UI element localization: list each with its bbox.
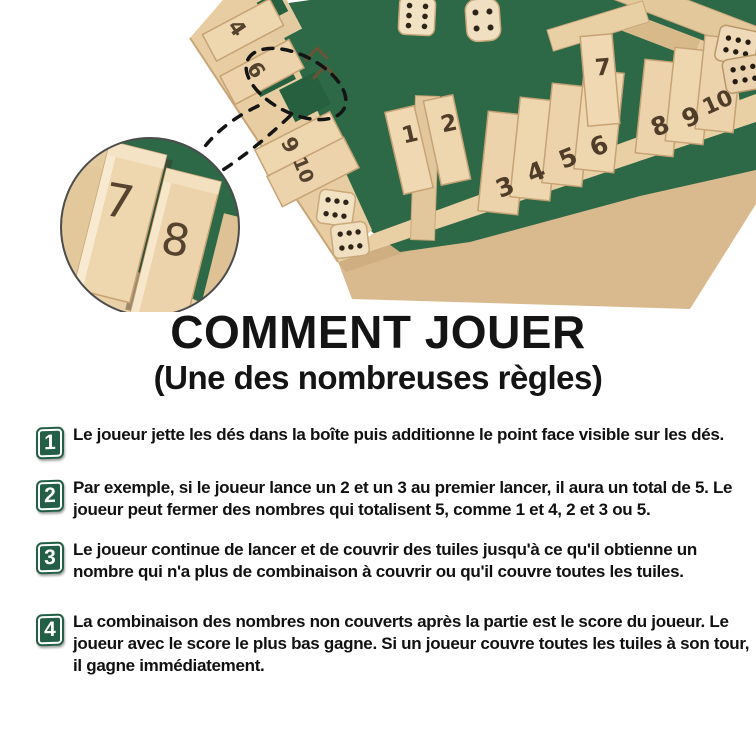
step-number-badge: 1 — [36, 427, 64, 460]
step-text: Par exemple, si le joueur lance un 2 et … — [73, 477, 752, 521]
tile-number: 7 — [594, 54, 612, 81]
step-number: 2 — [44, 484, 56, 508]
instruction-card: 4 6 9 10 — [0, 0, 756, 756]
die-on-felt-four — [465, 0, 502, 42]
die-right-edge-bottom — [721, 54, 756, 94]
step-text: Le joueur continue de lancer et de couvr… — [73, 539, 752, 583]
step-item-2: 2 Par exemple, si le joueur lance un 2 e… — [36, 477, 752, 521]
step-number: 3 — [44, 546, 56, 570]
die-corner-bottom — [330, 221, 370, 259]
step-number: 4 — [44, 618, 56, 642]
step-number: 1 — [44, 431, 56, 455]
board-illustration: 4 6 9 10 — [0, 0, 756, 312]
steps-list: 1 Le joueur jette les dés dans la boîte … — [36, 424, 752, 695]
step-text: La combinaison des nombres non couverts … — [73, 611, 752, 677]
step-item-1: 1 Le joueur jette les dés dans la boîte … — [36, 424, 752, 459]
step-text: Le joueur jette les dés dans la boîte pu… — [73, 424, 724, 446]
header: COMMENT JOUER (Une des nombreuses règles… — [0, 308, 756, 397]
page-title: COMMENT JOUER — [0, 308, 756, 356]
die-corner-top — [316, 189, 356, 228]
step-number-badge: 2 — [36, 480, 64, 513]
die-on-felt-six — [398, 0, 436, 36]
step-number-badge: 3 — [36, 542, 64, 575]
step-item-4: 4 La combinaison des nombres non couvert… — [36, 611, 752, 677]
page-subtitle: (Une des nombreuses règles) — [0, 359, 756, 397]
step-number-badge: 4 — [36, 614, 64, 647]
step-item-3: 3 Le joueur continue de lancer et de cou… — [36, 539, 752, 583]
product-photo: 4 6 9 10 — [0, 0, 756, 312]
magnifier-inset: 7 8 — [2, 122, 267, 312]
